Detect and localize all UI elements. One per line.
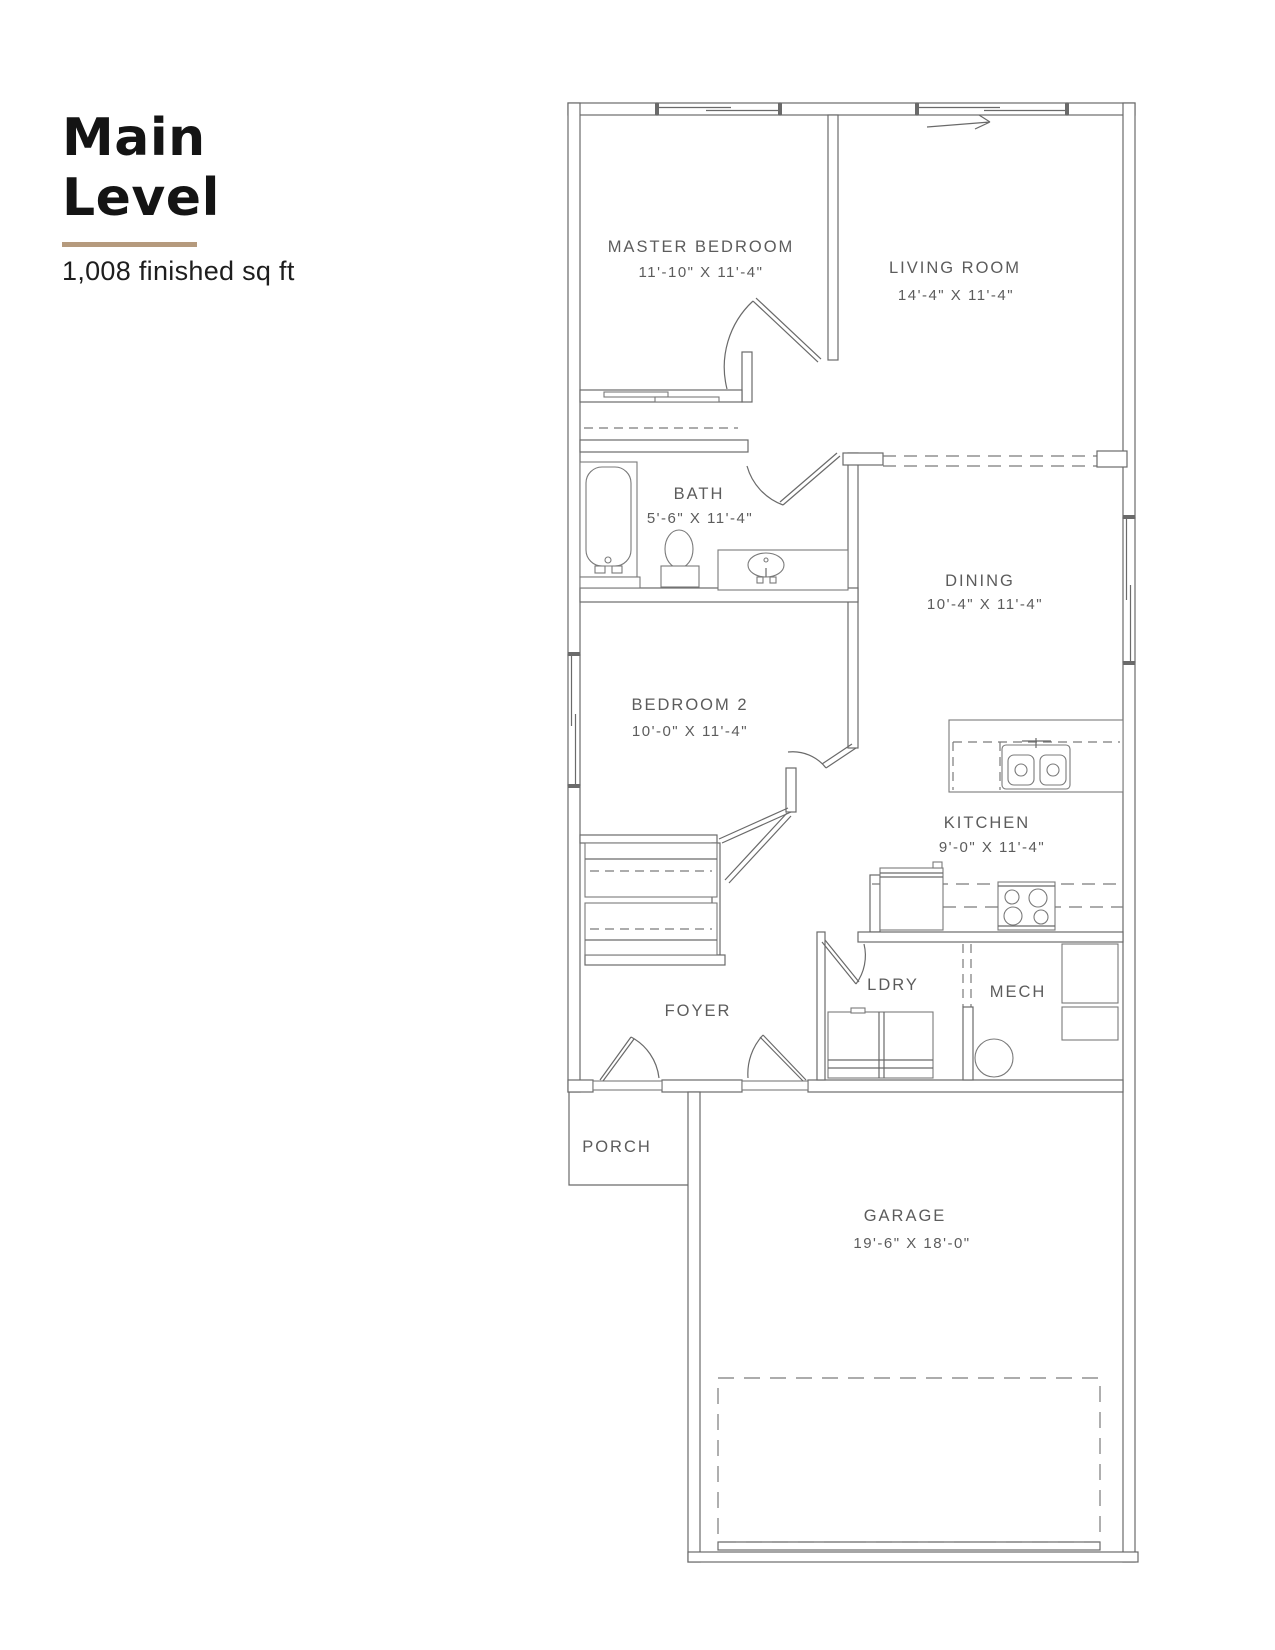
garage-structure: [688, 1092, 1138, 1562]
living-room-label: LIVING ROOM: [889, 259, 1021, 277]
toilet-fixture: [661, 530, 699, 587]
title-line-1: Main: [62, 108, 482, 168]
garage-door-clearance: [718, 1378, 1100, 1542]
plan-header: Main Level 1,008 finished sq ft: [62, 108, 482, 287]
kitchen-dims: 9'-0" X 11'-4": [939, 839, 1045, 856]
master-bedroom-door: [724, 298, 821, 389]
mech-equipment: [1062, 944, 1118, 1040]
garage-entry-door: [742, 1035, 808, 1090]
bath-vanity-sink: [718, 550, 848, 590]
living-dining-opening: [883, 456, 1097, 466]
dining-label: DINING: [945, 572, 1015, 590]
title-line-2: Level: [62, 168, 482, 228]
exterior-walls: [568, 103, 1135, 1562]
title-underline: [62, 242, 197, 247]
bedroom2-label: BEDROOM 2: [631, 696, 748, 714]
porch-label: PORCH: [582, 1138, 652, 1156]
dining-dims: 10'-4" X 11'-4": [927, 596, 1043, 613]
laundry-label: LDRY: [867, 976, 919, 994]
front-door: [593, 1037, 662, 1090]
stairs: [585, 843, 717, 955]
bath-door: [747, 453, 840, 505]
garage-door: [718, 1542, 1100, 1550]
master-bedroom-label: MASTER BEDROOM: [608, 238, 795, 256]
bath-dims: 5'-6" X 11'-4": [647, 510, 753, 527]
bath-label: BATH: [674, 485, 725, 503]
living-room-dims: 14'-4" X 11'-4": [898, 287, 1014, 304]
floor-plan-page: MASTER BEDROOM 11'-10" X 11'-4" LIVING R…: [0, 0, 1275, 1650]
kitchen-label: KITCHEN: [944, 814, 1030, 832]
page-title: Main Level: [62, 108, 482, 228]
kitchen-sink: [1002, 738, 1070, 789]
range-stove: [998, 882, 1055, 930]
refrigerator: [880, 862, 943, 930]
bedroom2-window: [568, 652, 580, 788]
laundry-door: [822, 940, 865, 984]
window-arrow-annotation: [927, 115, 990, 129]
living-room-window: [915, 103, 1069, 115]
finished-area-subtitle: 1,008 finished sq ft: [62, 256, 482, 287]
bathtub-fixture: [580, 462, 640, 588]
master-bedroom-dims: 11'-10" X 11'-4": [639, 264, 764, 281]
mech-opening: [963, 944, 971, 1007]
garage-label: GARAGE: [864, 1207, 947, 1225]
bedroom2-dims: 10'-0" X 11'-4": [632, 723, 748, 740]
bedroom2-door: [788, 752, 826, 768]
mech-label: MECH: [990, 983, 1047, 1001]
foyer-label: FOYER: [665, 1002, 732, 1020]
water-heater: [975, 1039, 1013, 1077]
washer-dryer: [828, 1008, 933, 1078]
master-bedroom-window: [655, 103, 782, 115]
garage-dims: 19'-6" X 18'-0": [853, 1235, 970, 1252]
dining-window: [1123, 515, 1135, 665]
